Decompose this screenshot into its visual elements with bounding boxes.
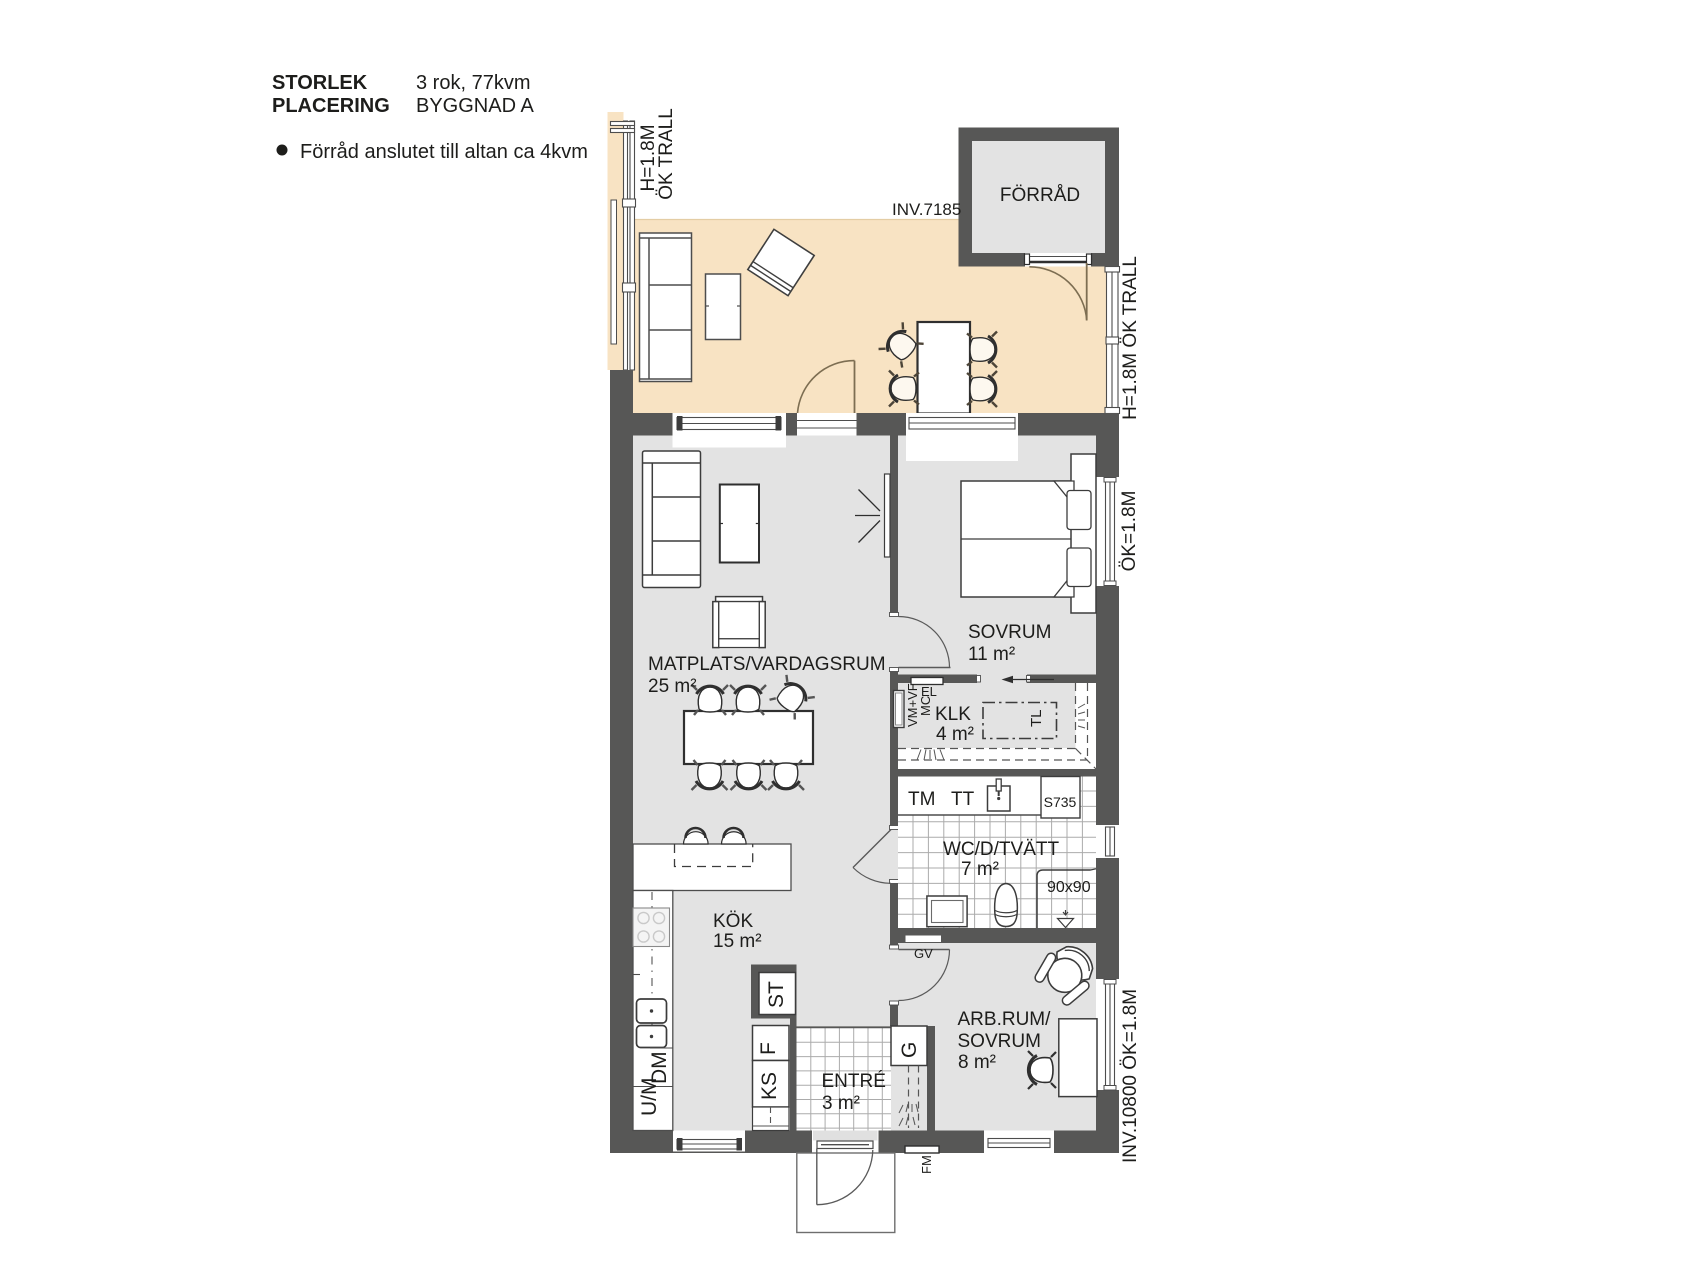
svg-text:S735: S735 (1044, 794, 1077, 810)
svg-text:SOVRUM: SOVRUM (968, 622, 1051, 643)
svg-text:PLACERING: PLACERING (272, 95, 390, 117)
svg-text:15 m²: 15 m² (713, 931, 762, 952)
svg-text:WC/D/TVÄTT: WC/D/TVÄTT (943, 839, 1059, 860)
svg-text:4 m²: 4 m² (936, 724, 974, 745)
svg-text:TM: TM (908, 789, 935, 810)
svg-text:SOVRUM: SOVRUM (958, 1031, 1041, 1052)
svg-text:G: G (898, 1042, 921, 1058)
svg-text:7 m²: 7 m² (961, 859, 999, 880)
svg-text:H=1.8M ÖK TRALL: H=1.8M ÖK TRALL (1120, 256, 1141, 420)
svg-text:FÖRRÅD: FÖRRÅD (1000, 185, 1080, 206)
svg-text:8 m²: 8 m² (958, 1052, 996, 1073)
svg-text:TL: TL (1028, 709, 1045, 727)
svg-text:GV: GV (914, 946, 933, 961)
svg-text:KLK: KLK (935, 704, 971, 725)
svg-text:FM: FM (919, 1155, 934, 1174)
svg-text:90x90: 90x90 (1047, 879, 1091, 896)
svg-text:INV.10800 ÖK=1.8M: INV.10800 ÖK=1.8M (1120, 989, 1141, 1163)
svg-text:MATPLATS/VARDAGSRUM: MATPLATS/VARDAGSRUM (648, 654, 886, 675)
svg-text:TT: TT (951, 789, 975, 810)
svg-text:U/M: U/M (638, 1078, 661, 1117)
svg-text:11 m²: 11 m² (968, 644, 1015, 665)
svg-text:ARB.RUM/: ARB.RUM/ (958, 1009, 1052, 1030)
svg-text:ST: ST (765, 981, 788, 1008)
svg-text:ÖK TRALL: ÖK TRALL (656, 108, 677, 200)
svg-text:3 m²: 3 m² (822, 1093, 860, 1114)
svg-text:ÖK=1.8M: ÖK=1.8M (1119, 491, 1140, 572)
svg-text:3 rok, 77kvm: 3 rok, 77kvm (416, 72, 530, 94)
svg-text:BYGGNAD A: BYGGNAD A (416, 95, 534, 117)
svg-text:KS: KS (758, 1072, 781, 1100)
svg-text:KÖK: KÖK (713, 911, 753, 932)
svg-text:INV.7185: INV.7185 (892, 200, 961, 219)
svg-text:EL: EL (921, 684, 937, 699)
svg-text:ENTRÉ: ENTRÉ (822, 1071, 886, 1092)
svg-text:Förråd anslutet till altan ca: Förråd anslutet till altan ca 4kvm (300, 141, 588, 163)
svg-text:25 m²: 25 m² (648, 676, 697, 697)
svg-text:F: F (757, 1042, 780, 1055)
svg-text:STORLEK: STORLEK (272, 72, 368, 94)
